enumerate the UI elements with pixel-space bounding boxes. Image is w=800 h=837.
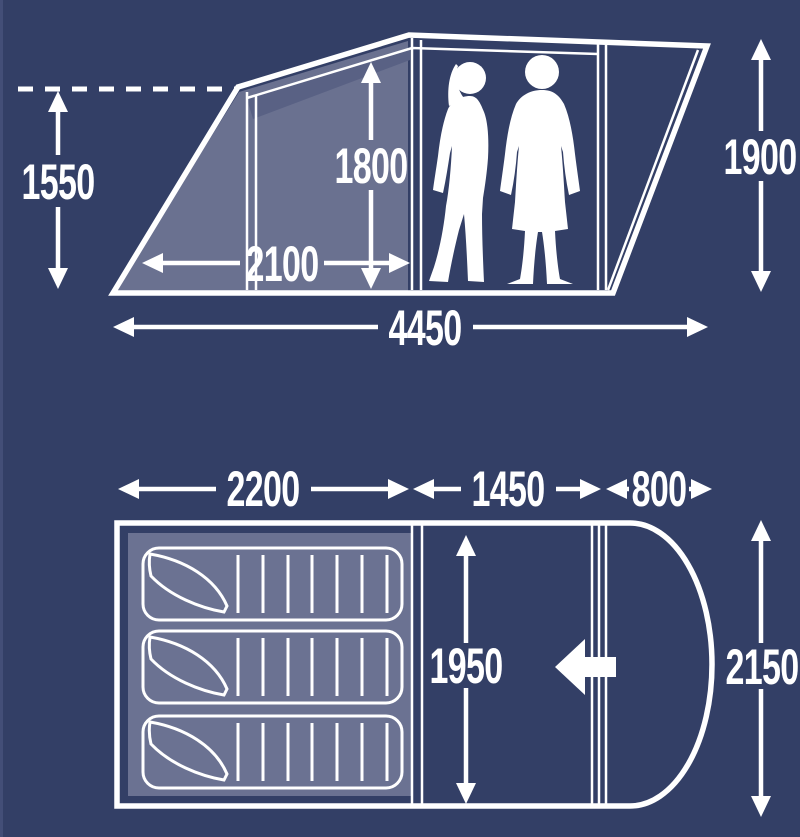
dim-height-left: 1550 [22,91,95,289]
dim-porch-width: 800 [606,462,712,518]
floor-plan-diagram: 2200 1450 800 1950 [117,462,799,817]
dim-living-depth: 1950 [430,535,503,804]
dim-label-800: 800 [632,462,687,518]
dim-total-depth: 2150 [726,520,799,817]
man-silhouette-icon [500,55,580,284]
dim-bedroom-width: 2200 [118,462,409,518]
dim-label-1950: 1950 [430,639,503,695]
dim-total-width: 4450 [113,301,708,357]
dim-label-1800: 1800 [335,139,408,195]
dim-living-width: 1450 [413,462,601,518]
tent-dimensions-diagram: 1550 1800 2100 4450 [0,0,800,837]
dim-label-2200: 2200 [227,462,300,518]
bedroom-groundsheet-shade [128,533,412,796]
dim-label-4450: 4450 [389,301,462,357]
dim-label-1900: 1900 [724,130,797,186]
dim-label-2100: 2100 [246,237,319,293]
dim-height-right: 1900 [724,39,797,292]
dim-label-1450: 1450 [472,462,545,518]
side-view-diagram: 1550 1800 2100 4450 [18,35,797,357]
porch-outline [612,523,712,806]
diagram-svg: 1550 1800 2100 4450 [0,0,800,837]
dim-label-2150: 2150 [726,640,799,696]
left-edge-highlight [0,0,3,837]
dim-label-1550: 1550 [22,155,95,211]
woman-silhouette-icon [429,62,488,282]
